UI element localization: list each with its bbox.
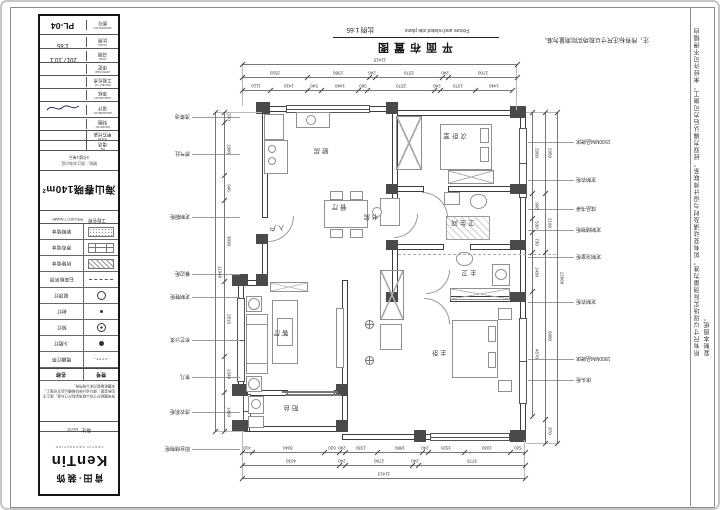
note-text: 所有图纸尺寸均以现场实际尺寸为准，施工中如有变更，请与设计师协商确认后方可施工，… (40, 381, 118, 400)
legend-symbol-glyph (88, 259, 114, 269)
column (336, 420, 348, 432)
dim-value: 1110 (251, 84, 260, 89)
dim-value: 240 (411, 459, 419, 464)
field-label-zh: 设计 (87, 105, 118, 111)
legend-symbol-glyph (100, 310, 103, 313)
callout-label: 阳台储物柜 (130, 445, 190, 452)
legend-name-text: 射灯 (57, 308, 67, 315)
callout-leader (528, 380, 574, 381)
callout-label: 1500MM品牌床 (576, 138, 648, 145)
room-label: 主卧 (430, 349, 447, 359)
field-label-zh: 审定 (87, 64, 118, 70)
legend-name: 暗藏灯带 (40, 356, 83, 363)
pillow (480, 128, 489, 143)
callout-leader (192, 449, 240, 450)
callout-leader (528, 180, 574, 181)
vanity-bowl (495, 269, 507, 280)
dim-value: 1520 (441, 446, 451, 451)
callout-label: 定制橱柜 (130, 213, 190, 220)
callout-leader (192, 412, 240, 413)
callout-label: 燃气灶 (130, 150, 190, 157)
dim-chain-line (242, 478, 525, 479)
dim-value: 520 (514, 446, 522, 451)
dim-value: 730 (535, 238, 540, 246)
dim-value: 945 (227, 184, 232, 192)
legend-row: 筒灯 (40, 320, 118, 336)
callout-leader (528, 302, 574, 303)
balcony-cabinet (248, 416, 264, 428)
toilet (470, 194, 487, 209)
dim-value: 1930 (482, 446, 492, 451)
dim-value: 1980 (227, 143, 232, 153)
dim-value: 1430 (535, 266, 540, 276)
window (519, 318, 527, 404)
project-label-zh: 工程名称 (88, 217, 106, 223)
extension-line (242, 432, 243, 478)
field-label-text: DATE日期 (87, 51, 118, 61)
room-label: 入户 (268, 224, 285, 234)
master-closet (380, 270, 404, 320)
legend-row: 原有墙体 (40, 240, 118, 256)
column (386, 184, 398, 194)
callout-leader (192, 340, 240, 341)
note-label-en: NOTE (67, 427, 78, 432)
burner (268, 145, 276, 153)
column (386, 240, 398, 250)
dim-value: 1880 (394, 446, 404, 451)
field-label-en: CHECKED BY (89, 96, 117, 100)
dim-value: 1440 (334, 84, 344, 89)
sofa-arm (246, 363, 268, 374)
room-label: 厨房 (312, 147, 329, 157)
sheet-scale: 比例 1:65 (332, 26, 374, 36)
dim-chain-line (242, 452, 525, 453)
legend-name: 原有墙体 (40, 244, 83, 251)
brand-name-cn: 肯田·装饰 (40, 472, 118, 485)
address-lines: 地址：剑江半岛小区3号楼1单元 (40, 154, 118, 168)
dim-value: 240 (338, 459, 346, 464)
legend-symbol-disc (83, 336, 118, 351)
dim-chain-line (532, 112, 533, 416)
field-label-en: SCALE (89, 43, 117, 47)
legend-row: 石膏板吊顶 (40, 272, 118, 288)
legend-symbol-ring (83, 288, 118, 303)
legend-header: 名称 符号 (40, 368, 118, 381)
legend-name: 拆除墙体 (40, 260, 83, 267)
dim-value: 2950 (548, 147, 553, 157)
legend-name-text: 新砌墙体 (52, 228, 71, 235)
legend-name-text: 吸顶灯 (54, 292, 68, 299)
callout-label: 餐边柜 (130, 270, 190, 277)
legend-table: 新砌墙体原有墙体拆除墙体石膏板吊顶吸顶灯射灯筒灯斗胆灯暗藏灯带–××××– (40, 224, 118, 368)
dim-chain-line (242, 90, 512, 91)
dim-chain-line (545, 112, 546, 443)
dim-value: 870 (548, 427, 553, 435)
legend-name-text: 暗藏灯带 (52, 356, 71, 363)
column (510, 106, 526, 118)
plant (248, 378, 260, 390)
bedroom2-closet (396, 116, 422, 170)
legend-name-text: 石膏板吊顶 (50, 276, 74, 283)
ceiling-lamp-icon (365, 320, 374, 329)
dim-value: 240 (368, 71, 376, 76)
room-label: 书房 (362, 213, 379, 223)
dim-value: 12060 (560, 271, 565, 284)
sheet-title: 平面布置图 (354, 40, 472, 56)
bath-basin (444, 192, 460, 205)
column (232, 274, 248, 286)
field-label-en: DESIGNED BY (89, 111, 117, 115)
field-label-en: TEL (89, 147, 117, 151)
dim-value: 3775 (466, 459, 476, 464)
extension-line (215, 431, 244, 432)
dim-value: 11413 (377, 472, 389, 477)
callout-label: 定制浴室柜 (576, 253, 648, 260)
dim-value: 11940 (218, 265, 223, 277)
legend-symbol-brick (83, 240, 118, 255)
dim-value: 1410 (283, 84, 293, 89)
dim-value: 2520 (269, 71, 279, 76)
field-label-zh: 图号 (87, 20, 118, 26)
field-label: DRAWN BY制图 (86, 119, 118, 129)
nightstand (498, 308, 512, 320)
field-label-text: PROJECT M.工程负责 (87, 77, 118, 87)
legend-symbol-target (83, 320, 118, 335)
edge-note: 所有尺寸以现场实际测量为准，如有变动请及时与设计师联系，经双方确认后方可施工。未… (693, 26, 714, 356)
pillow (488, 352, 496, 368)
legend-symbol-dashed (83, 272, 118, 287)
extension-line (242, 64, 243, 106)
legend-name: 吸顶灯 (40, 292, 83, 299)
callout-leader (192, 377, 240, 378)
note-label-zh: 备注 (82, 427, 91, 433)
brand-sub: KENTIN DECORATION (40, 445, 118, 449)
sliding-door (282, 391, 338, 393)
legend-symbol-dot (83, 304, 118, 319)
callout-leader (192, 217, 240, 218)
callout-label: 成品书桌 (576, 205, 648, 212)
dim-value: 2810 (227, 313, 232, 323)
legend-symbol-glyph (97, 291, 106, 300)
dim-value: 2570 (395, 84, 405, 89)
legend-row: 暗藏灯带–××××– (40, 352, 118, 368)
callout-leader (528, 359, 574, 360)
column (256, 234, 268, 244)
dim-chain-line (224, 112, 225, 431)
dining-chair (350, 229, 363, 238)
wall-segment (394, 186, 424, 192)
note-header-row: NOTE 备注 (40, 422, 118, 432)
right-margin-line (690, 7, 691, 506)
legend-symbol-glyph: –××××– (93, 357, 110, 362)
project-label-en: PROJECT NAME (52, 217, 83, 222)
kitchen-counter (264, 114, 284, 140)
legend-row: 拆除墙体 (40, 256, 118, 272)
field-label-zh: 电话 (87, 141, 118, 147)
field-label-text: TEL电话 (87, 141, 118, 151)
field-label-text: DESIGNED BY设计 (87, 105, 118, 115)
field-label-en: CLIENT (89, 137, 117, 141)
field-label-text: DRAWING NO图号 (87, 20, 118, 30)
project-label-row: PROJECT NAME 工程名称 (40, 211, 118, 224)
extension-line (526, 443, 558, 444)
callout-label: 布艺沙发 (130, 336, 190, 343)
dim-value: 240 (441, 71, 449, 76)
dim-chain-line (242, 465, 525, 466)
dim-chain-line (242, 64, 517, 65)
ceiling-lamp-icon (365, 356, 374, 365)
dining-chair (330, 191, 343, 200)
field-label: DRAWING NO图号 (86, 20, 118, 30)
column (510, 240, 526, 250)
legend-symbol-strip: –××××– (83, 352, 118, 367)
field-value (40, 137, 86, 155)
dining-chair (330, 229, 343, 238)
column (510, 184, 526, 194)
sliding-door (285, 394, 341, 396)
room-label: 阳台 (282, 404, 299, 414)
dim-value: 1440 (488, 84, 498, 89)
dim-value: 1460 (227, 406, 232, 416)
dim-value: 2700 (477, 71, 487, 76)
field-label: CHECKED BY审核 (86, 90, 118, 100)
callout-label: 洗衣机柜 (130, 408, 190, 415)
bedroom2-wardrobe (448, 170, 494, 184)
title-block: PL-04DRAWING NO图号1:65SCALE比例2017.10.1DAT… (38, 14, 120, 496)
dim-value: 620 (328, 446, 336, 451)
callout-label: 洗菜池 (130, 113, 190, 120)
field-label: PROJECT M.工程负责 (86, 77, 118, 87)
callout-label: 床头柜 (576, 376, 648, 383)
title-block-fields: PL-04DRAWING NO图号1:65SCALE比例2017.10.1DAT… (40, 16, 118, 151)
dim-chain-line (242, 77, 517, 78)
dim-value: 410 (243, 446, 251, 451)
dim-value: 4030 (285, 459, 295, 464)
column (510, 292, 526, 302)
plan-general-note: 注，所有标注尺寸以现场实际测量为准。 (507, 36, 649, 45)
dim-value: 2380 (333, 71, 343, 76)
field-row-tel: TEL电话 (40, 141, 118, 151)
legend-symbol-dotted (83, 224, 118, 239)
dining-chair (350, 191, 363, 200)
dim-value: 908 (535, 202, 540, 210)
field-label-zh: 制图 (87, 119, 118, 125)
callout-leader (528, 257, 574, 258)
field-label-zh: 比例 (87, 37, 118, 43)
bath-storage (450, 288, 510, 300)
callout-label: 1800MM品牌床 (576, 355, 648, 362)
dim-value: 1330 (356, 446, 366, 451)
address-line: 地址：剑江半岛小区 (40, 160, 118, 166)
note-block: 所有图纸尺寸均以现场实际尺寸为准，施工中如有变更，请与设计师协商确认后方可施工，… (40, 381, 118, 422)
field-label-en: DRAWING NO (89, 26, 117, 30)
field-label: DATE日期 (86, 51, 118, 61)
project-name-row: 海山春晓140m² (40, 171, 118, 211)
field-value-text: 2017.10.1 (50, 56, 77, 62)
legend-name: 筒灯 (40, 324, 83, 331)
plant (248, 298, 260, 310)
dim-value: 1340 (227, 369, 232, 379)
legend-name-text: 筒灯 (57, 324, 67, 331)
gas-stove (264, 140, 288, 174)
legend-name: 斗胆灯 (40, 340, 83, 347)
room-label: 餐厅 (330, 203, 347, 213)
field-value: PL-04 (40, 16, 86, 34)
extension-line (524, 440, 525, 478)
legend-symbol-hatch (83, 256, 118, 271)
column (386, 102, 398, 114)
callout-label: 定制储物柜 (576, 226, 648, 233)
dim-value: 540 (310, 84, 318, 89)
brand-logo: KenTin (40, 452, 118, 469)
callout-label: 定制衣柜 (576, 298, 648, 305)
designer-signature (44, 102, 82, 114)
dim-value: 2950 (535, 147, 540, 157)
dim-value: 2790 (373, 459, 383, 464)
dim-value: 240 (421, 446, 429, 451)
dim-value: 240 (433, 84, 441, 89)
dim-chain-line (215, 112, 216, 431)
field-value-text: PL-04 (51, 21, 74, 31)
dim-value: 360 (359, 84, 367, 89)
legend-row: 吸顶灯 (40, 288, 118, 304)
field-label: CLIENT甲方代表 (86, 131, 118, 141)
sheet-title-en: Fixture and related site plans (376, 27, 498, 33)
sideboard (270, 282, 308, 292)
callout-leader (192, 297, 240, 298)
address-row: 地址：剑江半岛小区3号楼1单元 (40, 151, 118, 171)
legend-row: 新砌墙体 (40, 224, 118, 240)
callout-leader (192, 274, 240, 275)
field-label-text: DRAWN BY制图 (87, 119, 118, 129)
legend-symbol-glyph (99, 341, 104, 346)
field-label: DESIGNED BY设计 (86, 105, 118, 115)
dim-value: 3040 (283, 446, 293, 451)
legend-name: 射灯 (40, 308, 83, 315)
callout-label: 茶几 (130, 373, 190, 380)
closet-shelves (380, 324, 402, 350)
extension-line (516, 64, 517, 110)
nightstand (498, 380, 512, 392)
field-label-text: APPROVED审定 (87, 64, 118, 74)
room-label: 主卫 (460, 269, 477, 279)
legend-row: 斗胆灯 (40, 336, 118, 352)
dim-value: 4570 (535, 348, 540, 358)
room-label: 卫生间 (449, 219, 475, 229)
field-label-text: CHECKED BY审核 (87, 90, 118, 100)
dim-value: 370 (227, 113, 232, 121)
callout-leader (192, 154, 240, 155)
window (430, 433, 510, 441)
dim-value: 240 (338, 446, 346, 451)
field-label: APPROVED审定 (86, 64, 118, 74)
project-name: 海山春晓140m² (42, 183, 115, 198)
callout-label: 定制鞋柜 (130, 293, 190, 300)
dim-value: 1370 (452, 84, 462, 89)
burner (268, 157, 276, 165)
legend-symbol-glyph (88, 243, 114, 253)
dim-value: 11415 (373, 58, 385, 63)
legend-name-text: 斗胆灯 (54, 340, 68, 347)
pillow (480, 147, 489, 162)
dim-value: 2160 (548, 217, 553, 227)
field-label: SCALE比例 (86, 37, 118, 47)
legend-header-name: 名称 (56, 371, 66, 378)
field-label-en: DRAWN BY (89, 125, 117, 129)
sink-bowl (306, 115, 316, 125)
dim-value: 3030 (227, 235, 232, 245)
legend-symbol-glyph (97, 323, 106, 332)
field-label-zh: 甲方代表 (87, 131, 118, 137)
field-label-en: APPROVED (89, 70, 117, 74)
callout-leader (192, 117, 240, 118)
wall-segment (394, 244, 444, 250)
brand-block: KENTIN DECORATION KenTin 肯田·装饰 (40, 432, 118, 498)
legend-name: 石膏板吊顶 (40, 276, 83, 283)
field-label-zh: 审核 (87, 90, 118, 96)
field-label-en: DATE (89, 57, 117, 61)
dim-chain-line (557, 112, 558, 443)
pillow (488, 326, 496, 342)
washer-drum (251, 399, 261, 409)
dim-value: 530 (535, 221, 540, 229)
room-label: 次卧室 (441, 132, 467, 142)
sheet-title-underline (333, 37, 499, 38)
legend-name-text: 原有墙体 (52, 244, 71, 251)
address-line: 3号楼1单元 (40, 154, 118, 160)
legend-row: 射灯 (40, 304, 118, 320)
field-label-text: SCALE比例 (87, 37, 118, 47)
callout-leader (528, 142, 574, 143)
field-label: TEL电话 (86, 141, 118, 151)
field-value-text: 1:65 (57, 42, 69, 48)
field-label-zh: 工程负责 (87, 77, 118, 83)
legend-name-text: 拆除墙体 (52, 260, 71, 267)
legend-symbol-glyph (89, 279, 113, 280)
legend-name: 新砌墙体 (40, 228, 83, 235)
dim-value: 2570 (403, 71, 413, 76)
sofa-arm (246, 314, 268, 325)
column (256, 274, 268, 286)
field-label-text: CLIENT甲方代表 (87, 131, 118, 141)
tv-bench (336, 308, 344, 368)
legend-symbol-glyph (88, 227, 114, 237)
room-label: 客厅 (272, 329, 289, 339)
field-label-zh: 日期 (87, 51, 118, 57)
dim-value: 6080 (548, 330, 553, 340)
callout-label: 定制衣柜 (576, 176, 648, 183)
field-label-en: PROJECT M. (89, 83, 117, 87)
drawing-sheet: 所有尺寸以现场实际测量为准，如有变动请及时与设计师联系，经双方确认后方可施工。未… (0, 0, 720, 510)
column (414, 430, 426, 442)
legend-header-symbol: 符号 (96, 371, 106, 378)
